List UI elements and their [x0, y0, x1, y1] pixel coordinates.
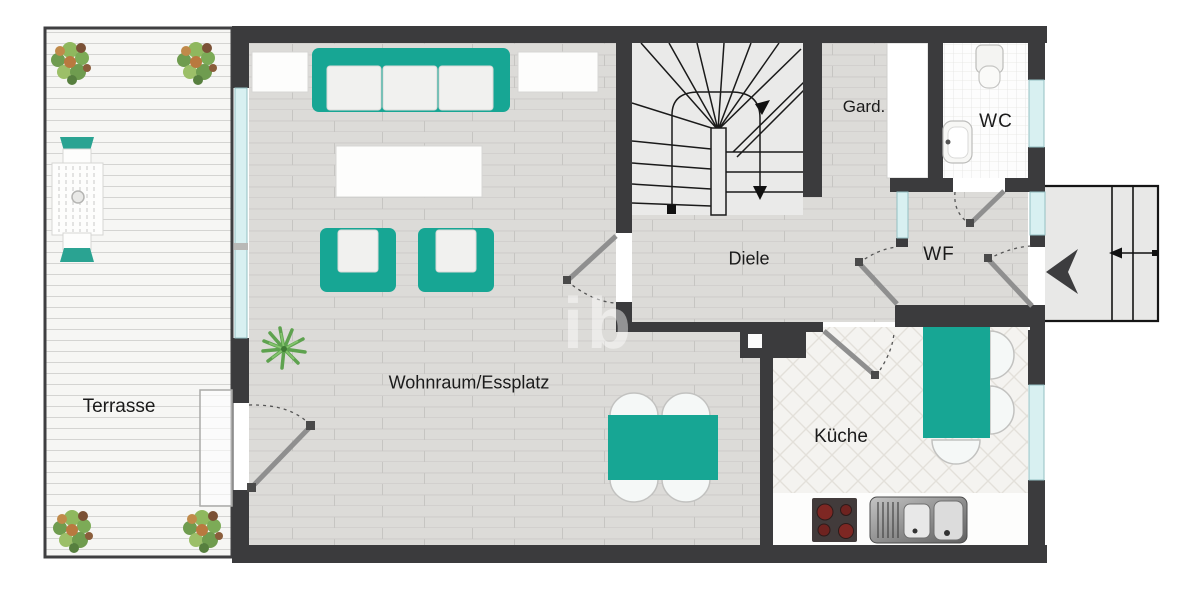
- terrace-window: [235, 88, 247, 338]
- sideboard-left: [252, 52, 308, 92]
- terrace-window-mullion: [234, 243, 248, 250]
- wardrobe-closet: [887, 43, 928, 178]
- wc-window: [1029, 80, 1044, 147]
- room-label-diele: Diele: [728, 249, 769, 270]
- armchair-right: [418, 228, 494, 292]
- toilet: [976, 45, 1003, 88]
- stairs-walk-line-start-square: [667, 205, 676, 214]
- floorplan-canvas: Terrasse Wohnraum/Essplatz Diele Gard. W…: [0, 0, 1200, 600]
- stove: [812, 498, 857, 542]
- living-room-floor: [249, 43, 616, 545]
- entry-sidelight-window: [1030, 192, 1045, 235]
- armchair-left: [320, 228, 396, 292]
- coffee-table: [336, 146, 482, 197]
- dining-set: [608, 393, 718, 502]
- entry-platform: [1045, 185, 1159, 322]
- sideboard-right: [518, 52, 598, 92]
- terrace-door-threshold: [200, 390, 232, 506]
- kitchen-sink: [870, 497, 967, 543]
- dining-table: [608, 415, 718, 480]
- room-label-wc: WC: [979, 111, 1013, 133]
- floorplan-drawing: [0, 0, 1200, 600]
- stair-newel: [711, 128, 726, 215]
- hall-vestibule-glass-panel: [897, 192, 908, 238]
- room-label-windfang: WF: [923, 244, 955, 266]
- room-label-garderobe: Gard.: [843, 97, 886, 117]
- sofa: [312, 48, 510, 112]
- room-label-wohnraum: Wohnraum/Essplatz: [389, 373, 550, 394]
- wc-sink: [943, 121, 972, 163]
- kitchen-table: [923, 327, 990, 438]
- kitchen-window: [1029, 385, 1044, 480]
- room-label-terrasse: Terrasse: [83, 396, 156, 418]
- wall-shaft-square: [748, 334, 762, 348]
- room-label-kueche: Küche: [814, 426, 868, 448]
- entry-direction-origin-dot: [1152, 250, 1158, 256]
